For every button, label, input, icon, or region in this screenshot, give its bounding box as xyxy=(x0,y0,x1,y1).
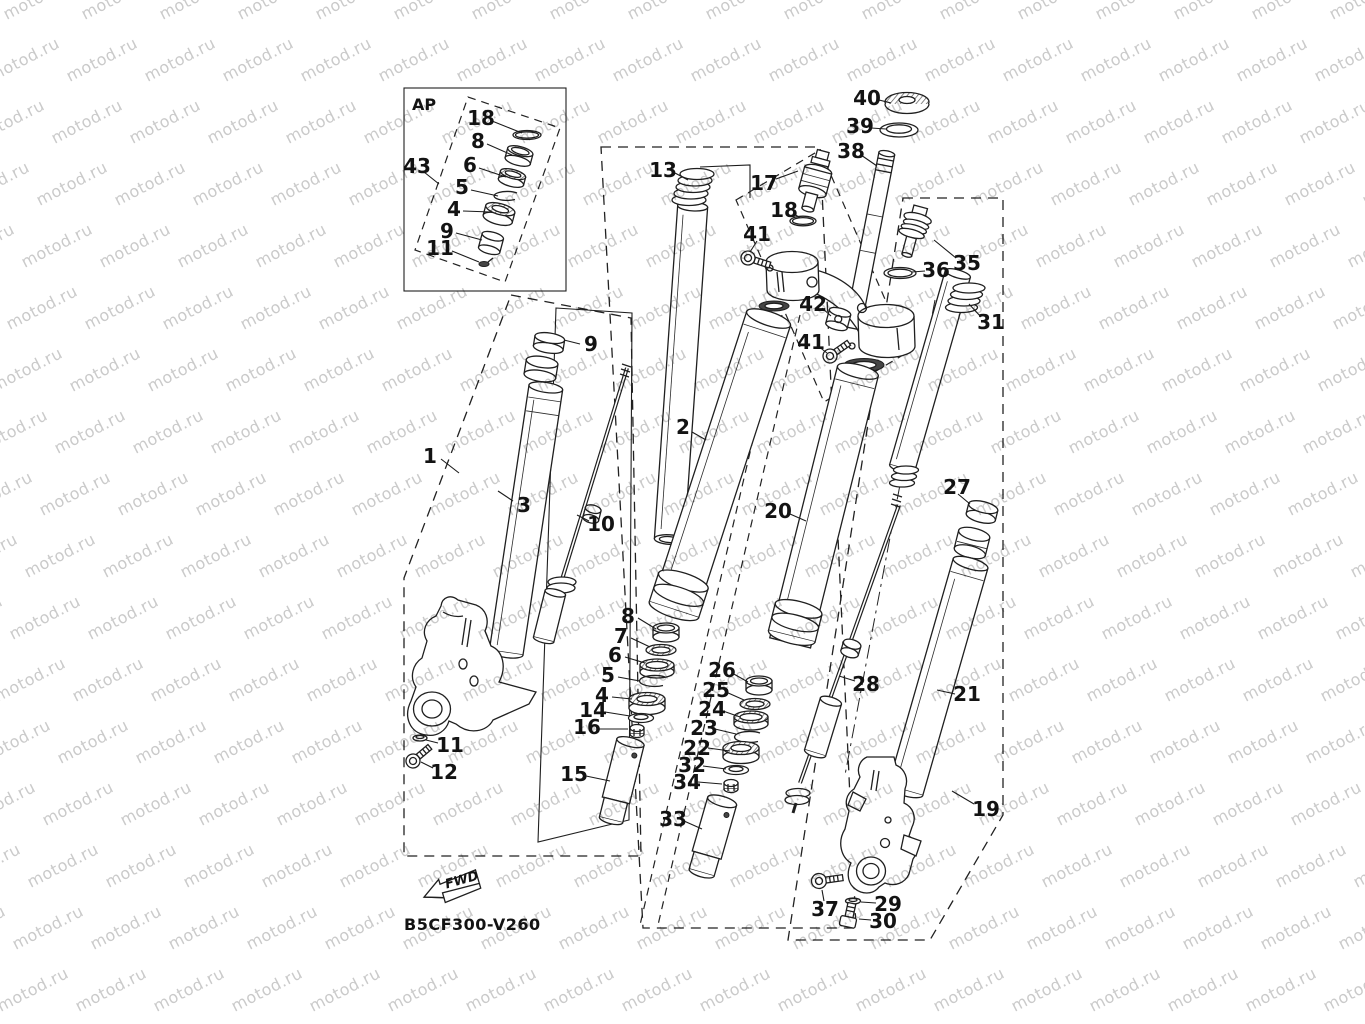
callout-28: 28 xyxy=(852,672,880,696)
leader-line-19 xyxy=(952,791,974,804)
leader-line-9 xyxy=(456,233,482,240)
leader-line-2 xyxy=(692,432,706,440)
leader-line-3 xyxy=(498,491,513,501)
callout-27: 27 xyxy=(943,475,971,499)
callout-15: 15 xyxy=(560,762,588,786)
oil-seal-24 xyxy=(734,711,768,730)
nut-34 xyxy=(724,780,738,793)
callout-2: 2 xyxy=(676,415,690,439)
leader-line-34 xyxy=(698,782,722,784)
spring-seat-22 xyxy=(723,742,759,764)
bushing-8 xyxy=(653,623,679,642)
bolt-37 xyxy=(811,870,844,889)
callout-34: 34 xyxy=(673,770,701,794)
callout-30: 30 xyxy=(869,909,897,933)
callout-18: 18 xyxy=(467,106,495,130)
parts-diagram-page: AP FWD B5CF300-V2 xyxy=(0,0,1365,1024)
callout-36: 36 xyxy=(922,258,950,282)
leader-line-1 xyxy=(441,459,459,473)
callout-4: 4 xyxy=(447,197,461,221)
callout-37: 37 xyxy=(811,897,839,921)
spring-washer-11 xyxy=(413,735,427,741)
inset-oring-18 xyxy=(513,131,541,140)
inset-bushing-9 xyxy=(478,230,505,257)
callout-20: 20 xyxy=(764,499,792,523)
callout-40: 40 xyxy=(853,86,881,110)
bolt-30 xyxy=(839,902,860,929)
callout-5: 5 xyxy=(455,175,469,199)
callout-35: 35 xyxy=(953,251,981,275)
callout-12: 12 xyxy=(430,760,458,784)
leader-line-11 xyxy=(452,251,479,262)
bushing-26 xyxy=(746,676,772,695)
callout-1: 1 xyxy=(423,444,437,468)
callout-11: 11 xyxy=(436,733,464,757)
clip-23 xyxy=(735,731,760,742)
fwd-arrow: FWD xyxy=(420,869,483,908)
callout-17: 17 xyxy=(750,171,778,195)
fork-spring-13 xyxy=(672,169,714,206)
drawing-code: B5CF300-V260 xyxy=(404,915,541,934)
inset-seat-4 xyxy=(482,200,516,228)
leader-line-9 xyxy=(564,340,580,344)
callout-13: 13 xyxy=(649,158,677,182)
inset-bushing-8 xyxy=(504,143,534,168)
cap-bolt-17 xyxy=(794,147,837,215)
leader-line-8 xyxy=(638,618,656,629)
leader-line-18 xyxy=(492,121,522,133)
outer-tube-21 xyxy=(887,553,990,800)
callout-16: 16 xyxy=(573,715,601,739)
inset-screw-11 xyxy=(479,258,493,267)
bushing-9-lower xyxy=(523,354,559,384)
o-ring-36 xyxy=(884,268,916,279)
fwd-label: FWD xyxy=(443,869,480,893)
callout-42: 42 xyxy=(799,292,827,316)
callout-33: 33 xyxy=(659,807,687,831)
spring-seat-4 xyxy=(629,693,665,715)
bearing-40 xyxy=(885,93,929,114)
washer-32 xyxy=(724,766,749,775)
leader-line-5 xyxy=(471,190,498,196)
leader-line-23 xyxy=(715,729,736,734)
inset-seal-6 xyxy=(497,166,527,189)
bushing-9-upper xyxy=(533,331,566,355)
callout-31: 31 xyxy=(977,310,1005,334)
leader-line-17 xyxy=(776,171,798,179)
oil-lock-15 xyxy=(597,734,646,827)
leader-line-7 xyxy=(631,638,650,647)
leader-line-32 xyxy=(703,766,726,769)
oil-lock-33 xyxy=(686,792,738,881)
callout-38: 38 xyxy=(837,139,865,163)
callout-3: 3 xyxy=(517,493,531,517)
washer-7 xyxy=(646,645,676,656)
inset-title: AP xyxy=(412,95,436,114)
callout-8: 8 xyxy=(471,129,485,153)
callout-11: 11 xyxy=(426,236,454,260)
callout-43: 43 xyxy=(403,154,431,178)
leader-line-14 xyxy=(605,712,630,716)
washer-14 xyxy=(629,714,654,723)
callout-41: 41 xyxy=(743,222,771,246)
callout-21: 21 xyxy=(953,682,981,706)
callout-19: 19 xyxy=(972,797,1000,821)
callout-39: 39 xyxy=(846,114,874,138)
callout-41: 41 xyxy=(797,330,825,354)
callout-18: 18 xyxy=(770,198,798,222)
washer-25 xyxy=(740,699,770,710)
callout-9: 9 xyxy=(584,332,598,356)
exploded-parts-diagram: AP FWD B5CF300-V2 xyxy=(0,0,1365,1024)
cap-bolt-35 xyxy=(893,203,934,261)
callout-6: 6 xyxy=(463,153,477,177)
washer-39 xyxy=(880,123,918,137)
callout-10: 10 xyxy=(587,512,615,536)
bushing-27-upper xyxy=(965,498,999,526)
nut-16 xyxy=(630,725,644,738)
